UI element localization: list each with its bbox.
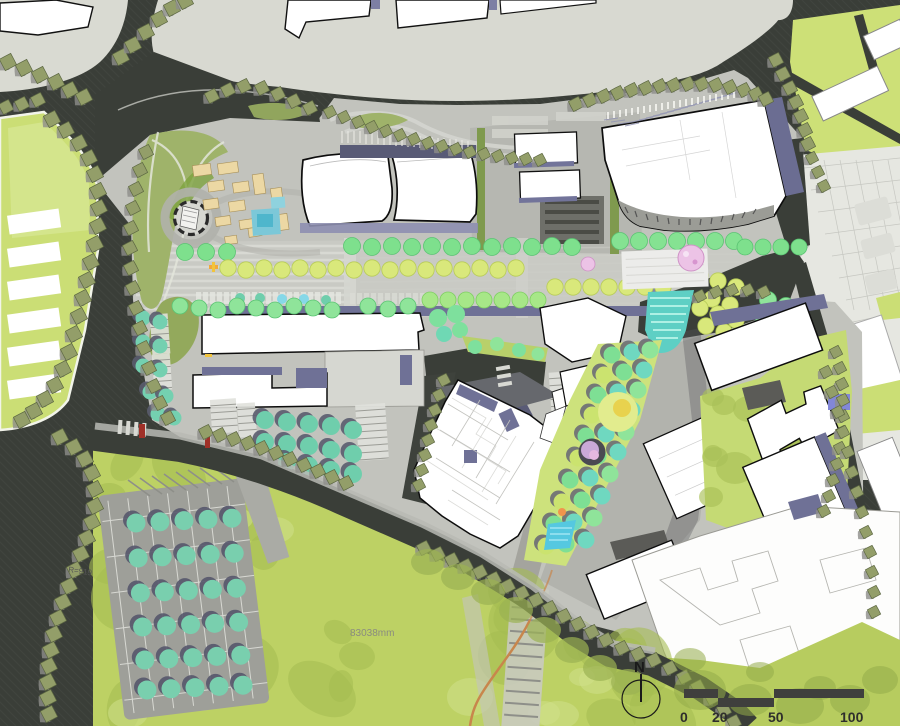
svg-text:0: 0 <box>680 709 688 725</box>
svg-text:50: 50 <box>768 709 784 725</box>
svg-text:83038mm: 83038mm <box>350 628 394 639</box>
svg-text:20: 20 <box>712 709 728 725</box>
svg-text:100: 100 <box>840 709 864 725</box>
svg-text:N: N <box>634 659 645 676</box>
